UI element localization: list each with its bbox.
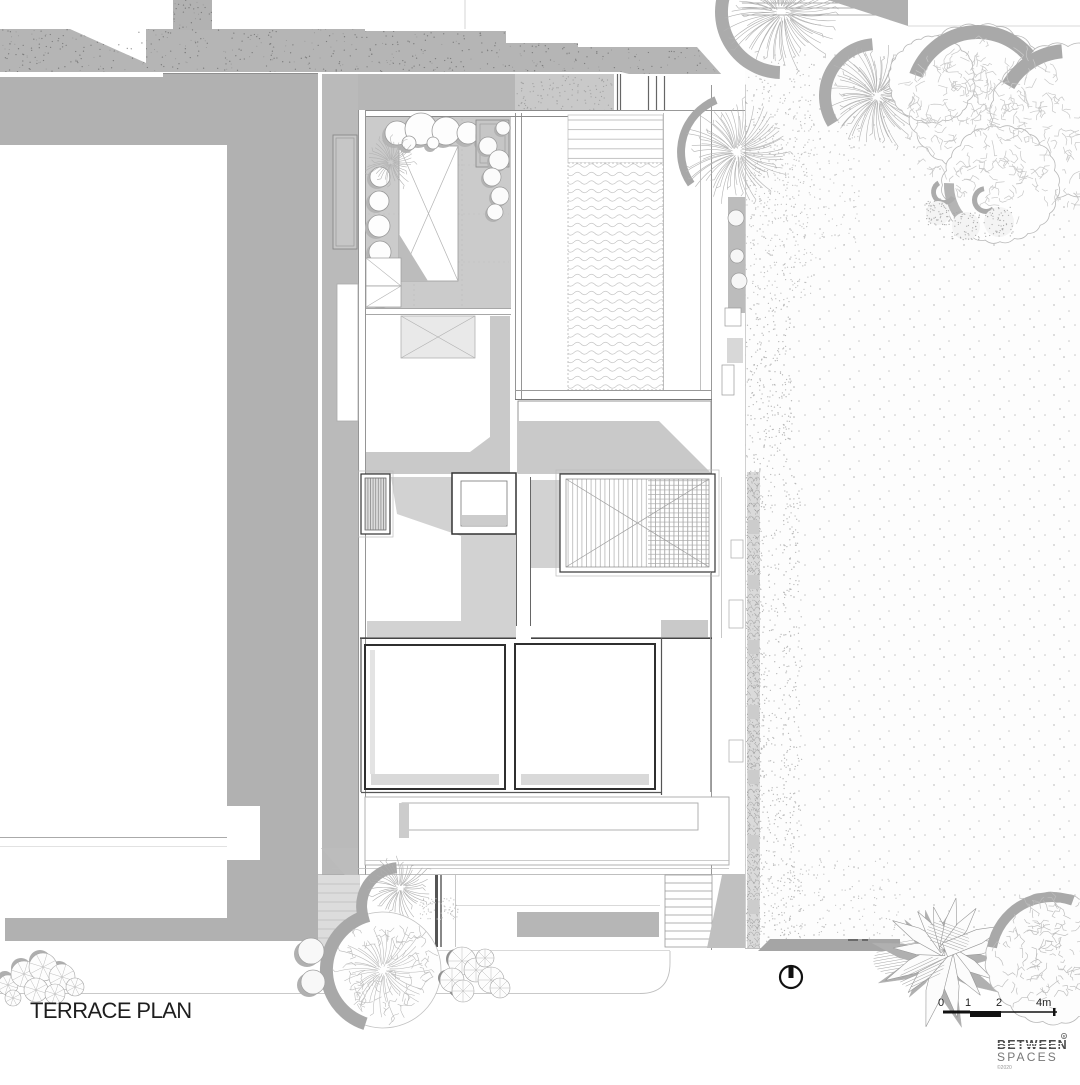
svg-text:4m: 4m — [1036, 997, 1051, 1009]
svg-text:2: 2 — [996, 997, 1002, 1009]
svg-text:R: R — [1063, 1034, 1066, 1039]
svg-text:©2020: ©2020 — [997, 1064, 1012, 1071]
svg-text:0: 0 — [938, 997, 944, 1009]
svg-text:SPACES: SPACES — [997, 1050, 1058, 1064]
svg-text:1: 1 — [965, 997, 971, 1009]
svg-text:TERRACE PLAN: TERRACE PLAN — [30, 998, 192, 1023]
